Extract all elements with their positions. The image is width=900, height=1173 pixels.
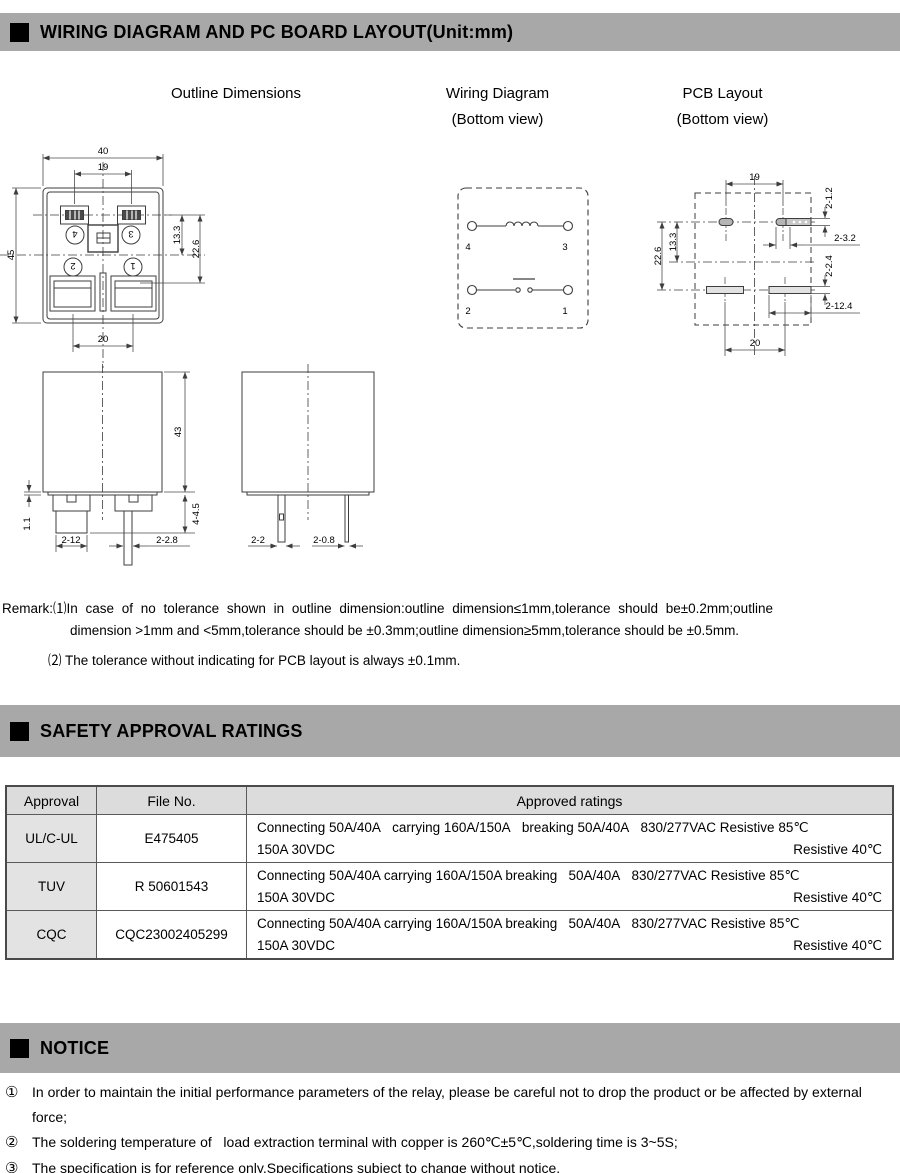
outline-terminal-2-label: 2 bbox=[70, 260, 75, 271]
dim-2-2-label: 2-2 bbox=[251, 535, 265, 546]
dim-20-label: 20 bbox=[98, 334, 109, 345]
section-title-wiring: WIRING DIAGRAM AND PC BOARD LAYOUT(Unit:… bbox=[40, 22, 513, 43]
table-header-approval: Approval bbox=[7, 787, 96, 814]
rating-line-1: Connecting 50A/40A carrying 160A/150A br… bbox=[257, 817, 882, 839]
dim-19-label: 19 bbox=[98, 162, 109, 173]
outline-dimension-labels: 40 19 45 13.3 22.6 20 bbox=[6, 146, 202, 345]
rating-line-1: Connecting 50A/40A carrying 160A/150A br… bbox=[257, 865, 882, 887]
pcb-dim-20-label: 20 bbox=[750, 338, 761, 349]
pcb-layout-subtitle: (Bottom view) bbox=[640, 107, 805, 133]
file-no-cell: CQC23002405299 bbox=[96, 911, 246, 958]
wiring-terminal-4-label: 4 bbox=[465, 242, 470, 253]
section-bar-safety-ratings: SAFETY APPROVAL RATINGS bbox=[0, 705, 900, 757]
wiring-terminal-1-label: 1 bbox=[562, 306, 567, 317]
black-square-icon bbox=[10, 23, 29, 42]
file-no-cell: R 50601543 bbox=[96, 863, 246, 910]
pcb-dim-2-12-label: 2-1.2 bbox=[824, 187, 835, 209]
rating-line-2-right: Resistive 40℃ bbox=[793, 935, 882, 956]
remark-line-1: Remark:⑴In case of no tolerance shown in… bbox=[2, 597, 773, 617]
table-header-row: Approval File No. Approved ratings bbox=[7, 787, 892, 814]
notice-text: The soldering temperature of load extrac… bbox=[32, 1130, 884, 1155]
remark-line-2: dimension >1mm and <5mm,tolerance should… bbox=[70, 623, 739, 638]
approval-cell: CQC bbox=[7, 911, 96, 958]
side-view-right-body bbox=[242, 364, 374, 542]
section-bar-wiring-diagram: WIRING DIAGRAM AND PC BOARD LAYOUT(Unit:… bbox=[0, 13, 900, 51]
file-no-cell: E475405 bbox=[96, 815, 246, 862]
pcb-layout-drawing: 19 2-1.2 2-3.2 2-2.4 2-12.4 22.6 13.3 20 bbox=[653, 150, 900, 380]
ratings-cell: Connecting 50A/40A carrying 160A/150A br… bbox=[246, 911, 892, 958]
notice-item: ① In order to maintain the initial perfo… bbox=[5, 1080, 884, 1130]
ratings-cell: Connecting 50A/40A carrying 160A/150A br… bbox=[246, 863, 892, 910]
wiring-diagram-title: Wiring Diagram bbox=[415, 81, 580, 107]
dim-2-28-label: 2-2.8 bbox=[156, 535, 178, 546]
outline-terminal-3-label: 3 bbox=[128, 228, 133, 239]
column-title-outline: Outline Dimensions bbox=[130, 81, 342, 107]
column-title-pcb: PCB Layout (Bottom view) bbox=[640, 81, 805, 133]
black-square-icon bbox=[10, 722, 29, 741]
wiring-diagram-drawing: 4 3 2 1 bbox=[440, 178, 605, 343]
column-title-wiring: Wiring Diagram (Bottom view) bbox=[415, 81, 580, 133]
safety-approval-table: Approval File No. Approved ratings UL/C-… bbox=[5, 785, 894, 960]
datasheet-page: WIRING DIAGRAM AND PC BOARD LAYOUT(Unit:… bbox=[0, 0, 900, 1173]
outline-terminal-1-label: 1 bbox=[130, 260, 135, 271]
circled-3-icon: ③ bbox=[5, 1156, 32, 1173]
dim-40-label: 40 bbox=[98, 146, 109, 157]
circled-2-icon: ② bbox=[5, 1130, 32, 1155]
dim-22-6-label: 22.6 bbox=[191, 240, 202, 259]
notice-item: ③ The specification is for reference onl… bbox=[5, 1156, 884, 1173]
dim-2-12-label: 2-12 bbox=[61, 535, 80, 546]
table-row: TUV R 50601543 Connecting 50A/40A carryi… bbox=[7, 862, 892, 910]
dim-4-45-label: 4-4.5 bbox=[191, 503, 202, 525]
table-row: CQC CQC23002405299 Connecting 50A/40A ca… bbox=[7, 910, 892, 958]
pcb-dim-13-3-label: 13.3 bbox=[668, 233, 679, 252]
dim-1-1-label: 1.1 bbox=[22, 517, 33, 530]
wiring-terminal-2-label: 2 bbox=[465, 306, 470, 317]
outline-dimension-lines bbox=[12, 154, 205, 352]
pcb-dim-2-32-label: 2-3.2 bbox=[834, 233, 856, 244]
dim-13-3-label: 13.3 bbox=[172, 226, 183, 245]
pcb-dim-22-6-label: 22.6 bbox=[653, 247, 664, 266]
ratings-cell: Connecting 50A/40A carrying 160A/150A br… bbox=[246, 815, 892, 862]
notice-text: The specification is for reference only.… bbox=[32, 1156, 884, 1173]
section-title-safety: SAFETY APPROVAL RATINGS bbox=[40, 721, 303, 742]
rating-line-2-left: 150A 30VDC bbox=[257, 887, 335, 908]
outline-terminal-4-label: 4 bbox=[72, 228, 77, 239]
black-square-icon bbox=[10, 1039, 29, 1058]
remark-line-3: ⑵ The tolerance without indicating for P… bbox=[48, 649, 460, 669]
table-row: UL/C-UL E475405 Connecting 50A/40A carry… bbox=[7, 814, 892, 862]
pcb-layout-title: PCB Layout bbox=[640, 81, 805, 107]
outline-top-view-drawing: 4 3 2 1 40 19 45 13.3 22.6 20 bbox=[0, 140, 235, 372]
section-bar-notice: NOTICE bbox=[0, 1023, 900, 1073]
notice-text: In order to maintain the initial perform… bbox=[32, 1080, 884, 1130]
rating-line-2-right: Resistive 40℃ bbox=[793, 839, 882, 860]
table-header-file-no: File No. bbox=[96, 787, 246, 814]
wiring-circuit-lines bbox=[458, 188, 588, 328]
dim-2-08-label: 2-0.8 bbox=[313, 535, 335, 546]
section-title-notice: NOTICE bbox=[40, 1038, 109, 1059]
pcb-dim-19-label: 19 bbox=[749, 172, 760, 183]
rating-line-2-right: Resistive 40℃ bbox=[793, 887, 882, 908]
approval-cell: UL/C-UL bbox=[7, 815, 96, 862]
pcb-dim-2-24-label: 2-2.4 bbox=[824, 255, 835, 277]
rating-line-1: Connecting 50A/40A carrying 160A/150A br… bbox=[257, 913, 882, 935]
pcb-dim-2-124-label: 2-12.4 bbox=[826, 301, 853, 312]
wiring-diagram-subtitle: (Bottom view) bbox=[415, 107, 580, 133]
rating-line-2-left: 150A 30VDC bbox=[257, 839, 335, 860]
wiring-terminal-3-label: 3 bbox=[562, 242, 567, 253]
rating-line-2-left: 150A 30VDC bbox=[257, 935, 335, 956]
pcb-outline-lines bbox=[657, 176, 815, 357]
dim-45-label: 45 bbox=[6, 250, 17, 261]
notice-item: ② The soldering temperature of load extr… bbox=[5, 1130, 884, 1155]
circled-1-icon: ① bbox=[5, 1080, 32, 1130]
side-view-dimension-labels: 43 4-4.5 1.1 2-12 2-2.8 2-2 2-0.8 bbox=[22, 427, 335, 546]
outline-side-views-drawing: 43 4-4.5 1.1 2-12 2-2.8 2-2 2-0.8 bbox=[20, 362, 410, 577]
table-header-approved-ratings: Approved ratings bbox=[246, 787, 892, 814]
outline-dimensions-title: Outline Dimensions bbox=[130, 81, 342, 107]
dim-43-label: 43 bbox=[173, 427, 184, 438]
approval-cell: TUV bbox=[7, 863, 96, 910]
